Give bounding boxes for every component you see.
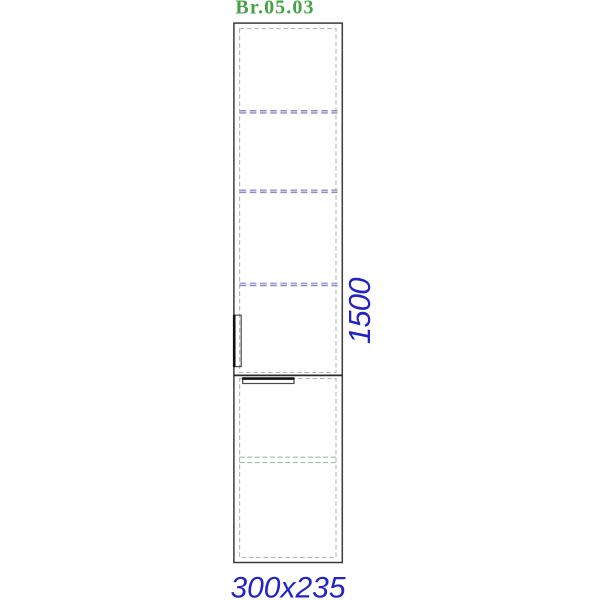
svg-text:1500: 1500	[342, 278, 377, 344]
svg-text:Br.05.03: Br.05.03	[235, 0, 314, 19]
svg-text:300x235: 300x235	[230, 572, 345, 600]
